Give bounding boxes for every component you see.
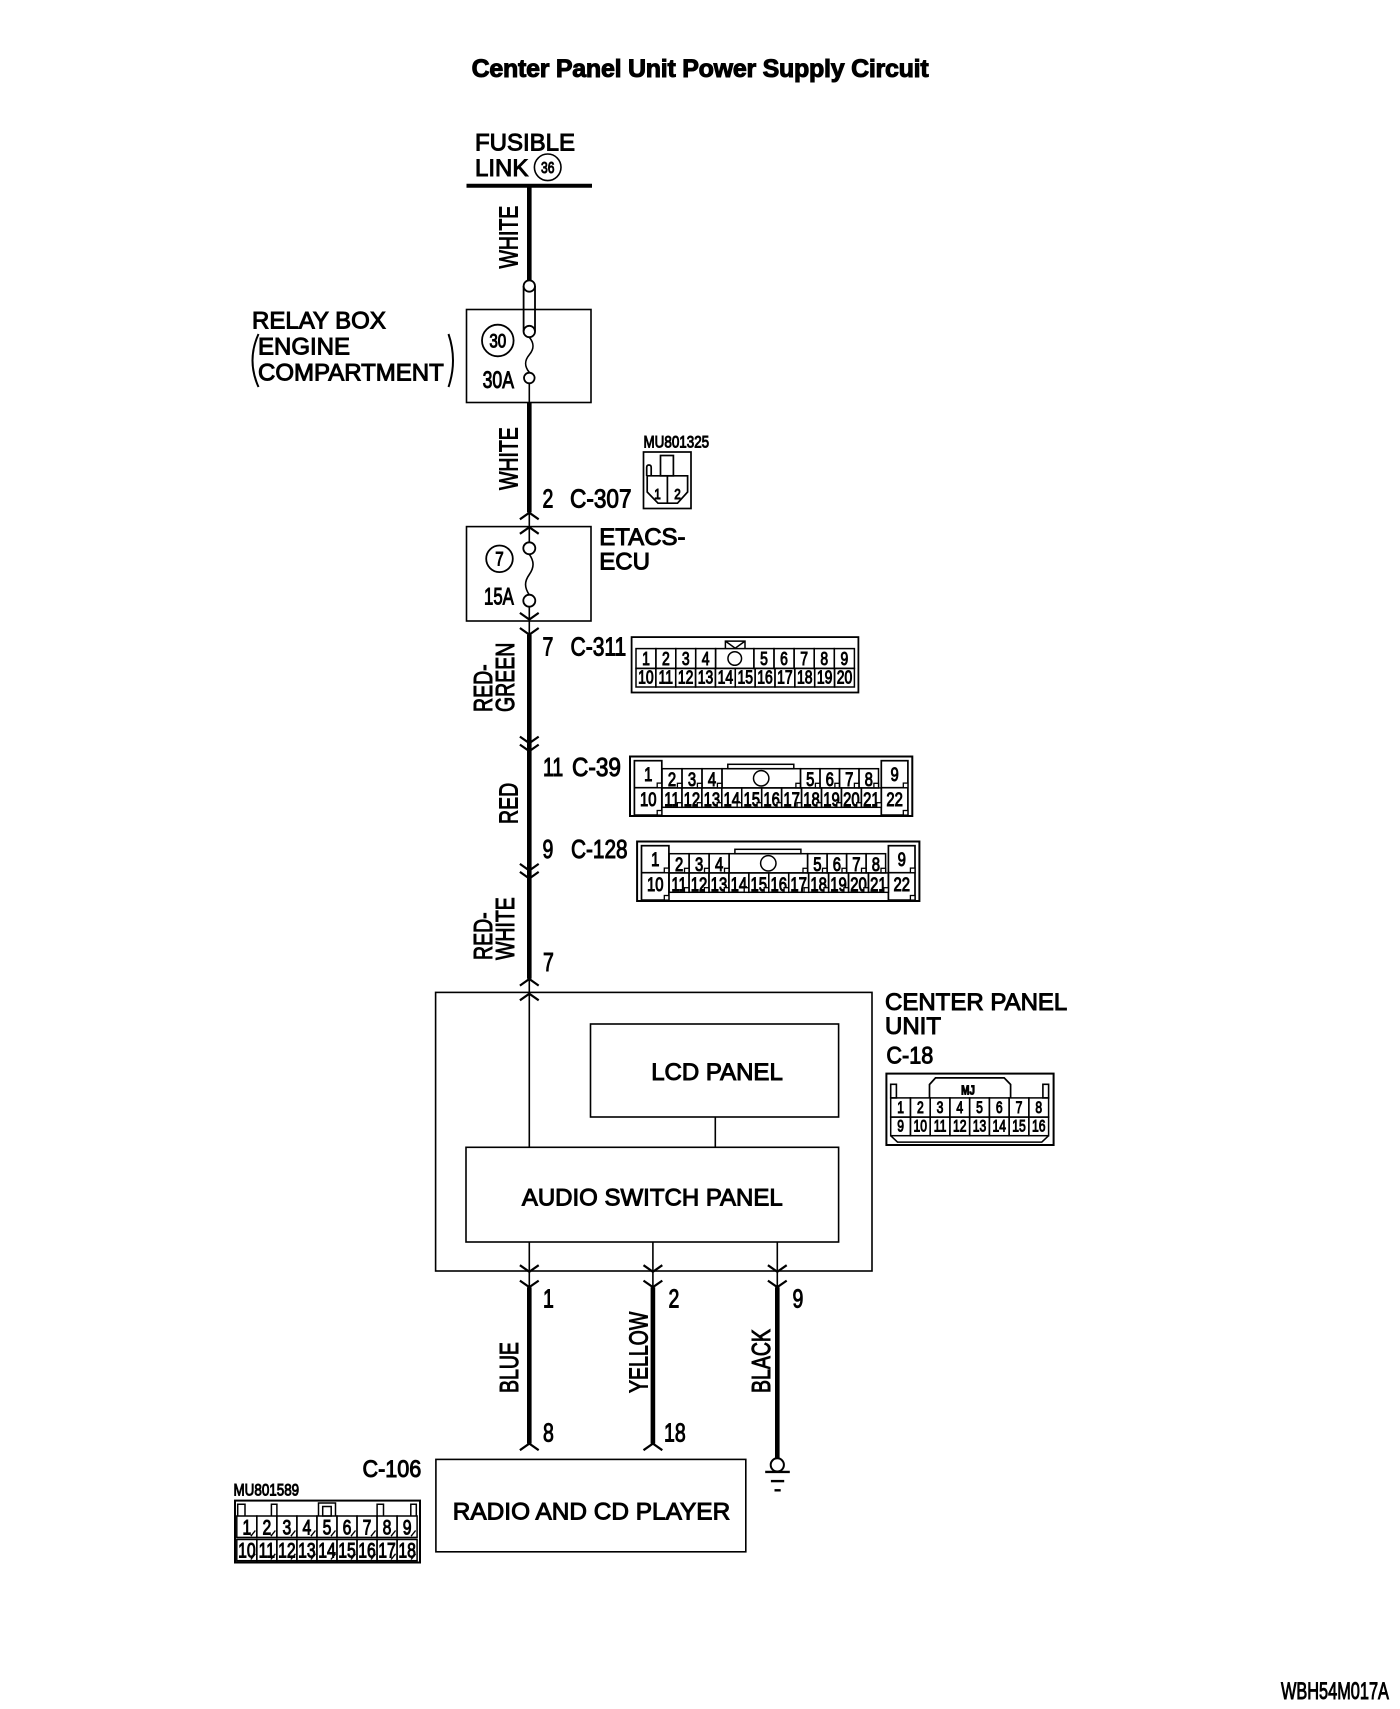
svg-text:1: 1	[242, 1515, 251, 1539]
svg-text:C-106: C-106	[363, 1455, 422, 1482]
svg-text:9: 9	[898, 848, 906, 871]
svg-text:11: 11	[659, 668, 673, 688]
svg-text:1: 1	[897, 1100, 904, 1118]
svg-text:8: 8	[1035, 1100, 1042, 1118]
svg-text:12: 12	[953, 1118, 967, 1136]
svg-text:14: 14	[993, 1118, 1007, 1136]
svg-text:9: 9	[543, 834, 554, 863]
svg-text:19: 19	[817, 668, 833, 688]
svg-text:14: 14	[718, 668, 734, 688]
svg-text:22: 22	[893, 873, 910, 896]
svg-text:RED: RED	[494, 783, 523, 824]
svg-text:18: 18	[664, 1418, 686, 1447]
svg-text:AUDIO SWITCH PANEL: AUDIO SWITCH PANEL	[522, 1184, 783, 1211]
svg-text:11: 11	[543, 752, 563, 781]
svg-text:3: 3	[937, 1100, 944, 1118]
svg-text:10: 10	[238, 1538, 256, 1562]
svg-text:9: 9	[840, 649, 848, 669]
svg-text:ECU: ECU	[599, 549, 650, 576]
svg-text:10: 10	[914, 1118, 928, 1136]
svg-text:BLACK: BLACK	[746, 1329, 775, 1393]
svg-text:1: 1	[543, 1284, 554, 1313]
svg-text:C-307: C-307	[570, 485, 632, 514]
svg-text:2: 2	[662, 649, 670, 669]
svg-text:17: 17	[378, 1538, 396, 1562]
svg-text:11: 11	[259, 1538, 275, 1562]
svg-text:CENTER PANEL: CENTER PANEL	[885, 989, 1067, 1016]
svg-text:8: 8	[383, 1515, 392, 1539]
svg-text:RADIO AND CD PLAYER: RADIO AND CD PLAYER	[453, 1498, 730, 1525]
svg-text:13: 13	[298, 1538, 316, 1562]
svg-text:18: 18	[797, 668, 813, 688]
svg-text:2: 2	[262, 1515, 271, 1539]
svg-text:WHITE: WHITE	[494, 427, 523, 490]
svg-text:Center Panel Unit Power Supply: Center Panel Unit Power Supply Circuit	[472, 55, 930, 83]
svg-text:C-128: C-128	[571, 835, 628, 864]
svg-text:5: 5	[323, 1515, 332, 1539]
svg-text:3: 3	[283, 1515, 292, 1539]
svg-text:15A: 15A	[484, 584, 514, 611]
svg-text:4: 4	[303, 1515, 312, 1539]
svg-text:15: 15	[1012, 1118, 1026, 1136]
svg-text:GREEN: GREEN	[490, 643, 519, 712]
svg-text:2: 2	[543, 484, 554, 513]
svg-text:7: 7	[1016, 1100, 1023, 1118]
svg-text:10: 10	[640, 788, 657, 811]
svg-text:MJ: MJ	[961, 1085, 975, 1098]
svg-text:MU801325: MU801325	[644, 433, 710, 452]
svg-text:30A: 30A	[483, 367, 514, 393]
svg-text:C-39: C-39	[572, 754, 621, 783]
svg-text:7: 7	[363, 1515, 372, 1539]
svg-text:15: 15	[737, 668, 753, 688]
svg-text:10: 10	[638, 668, 654, 688]
svg-text:1: 1	[651, 848, 659, 871]
svg-text:LCD PANEL: LCD PANEL	[651, 1059, 783, 1086]
svg-text:2: 2	[674, 486, 681, 503]
svg-text:7: 7	[800, 649, 808, 669]
svg-text:11: 11	[934, 1118, 947, 1136]
svg-text:13: 13	[973, 1118, 987, 1136]
svg-text:WHITE: WHITE	[490, 897, 519, 960]
svg-text:13: 13	[698, 668, 714, 688]
svg-text:WHITE: WHITE	[494, 206, 523, 269]
svg-text:16: 16	[358, 1538, 376, 1562]
svg-text:9: 9	[403, 1515, 412, 1539]
svg-text:12: 12	[678, 668, 694, 688]
svg-text:COMPARTMENT: COMPARTMENT	[258, 359, 444, 386]
svg-text:16: 16	[757, 668, 773, 688]
svg-text:RELAY BOX: RELAY BOX	[252, 307, 386, 334]
svg-text:LINK: LINK	[475, 155, 528, 182]
svg-text:7: 7	[495, 547, 503, 569]
svg-text:YELLOW: YELLOW	[624, 1311, 653, 1393]
svg-text:2: 2	[917, 1100, 924, 1118]
svg-text:6: 6	[996, 1100, 1003, 1118]
svg-text:BLUE: BLUE	[494, 1342, 523, 1393]
svg-text:5: 5	[760, 649, 768, 669]
svg-text:C-311: C-311	[571, 633, 627, 662]
svg-text:6: 6	[343, 1515, 352, 1539]
svg-text:6: 6	[780, 649, 788, 669]
svg-text:20: 20	[837, 668, 853, 688]
svg-text:36: 36	[541, 158, 555, 176]
svg-text:8: 8	[820, 649, 828, 669]
svg-text:9: 9	[890, 763, 898, 786]
svg-text:2: 2	[669, 1284, 680, 1313]
svg-text:1: 1	[644, 763, 652, 786]
svg-text:4: 4	[956, 1100, 963, 1118]
svg-text:4: 4	[702, 649, 710, 669]
svg-text:8: 8	[543, 1418, 554, 1447]
svg-text:FUSIBLE: FUSIBLE	[475, 130, 575, 157]
svg-text:MU801589: MU801589	[234, 1481, 300, 1500]
svg-text:16: 16	[1032, 1118, 1046, 1136]
svg-text:9: 9	[897, 1118, 904, 1136]
svg-text:7: 7	[543, 947, 554, 976]
svg-text:1: 1	[642, 649, 650, 669]
svg-text:C-18: C-18	[886, 1042, 933, 1069]
svg-text:18: 18	[398, 1538, 416, 1562]
svg-text:17: 17	[777, 668, 793, 688]
svg-text:22: 22	[886, 788, 903, 811]
svg-text:30: 30	[489, 329, 506, 351]
svg-text:3: 3	[682, 649, 690, 669]
svg-text:7: 7	[543, 632, 554, 661]
svg-text:12: 12	[278, 1538, 296, 1562]
svg-text:WBH54M017A: WBH54M017A	[1281, 1678, 1389, 1705]
svg-text:ETACS-: ETACS-	[599, 524, 685, 551]
svg-text:UNIT: UNIT	[885, 1013, 941, 1040]
svg-text:1: 1	[654, 486, 661, 503]
svg-text:9: 9	[793, 1284, 804, 1313]
svg-text:ENGINE: ENGINE	[258, 334, 350, 361]
svg-text:5: 5	[976, 1100, 983, 1118]
svg-text:15: 15	[338, 1538, 356, 1562]
svg-text:14: 14	[318, 1538, 336, 1562]
svg-text:10: 10	[647, 873, 664, 896]
